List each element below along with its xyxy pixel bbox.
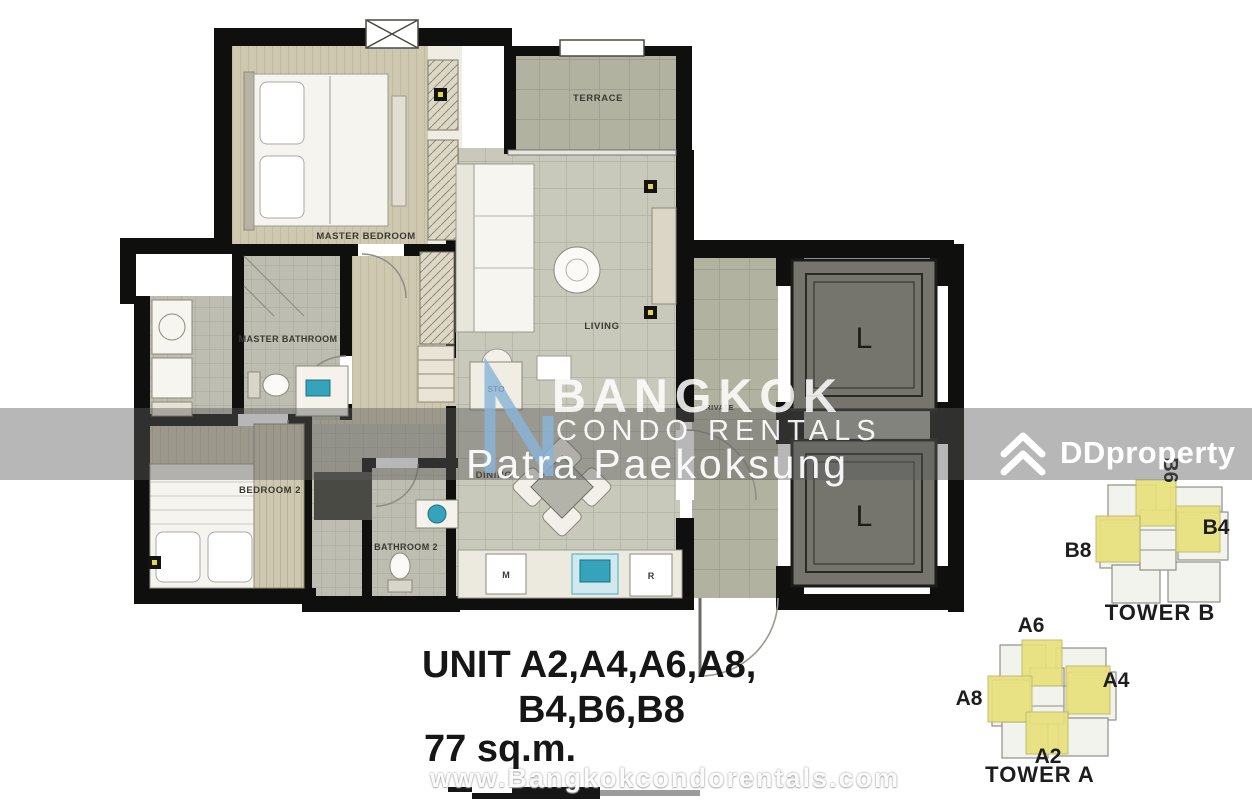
floorplan-image: L L MASTER BEDROOM MASTER BATHROOM BEDRO… (0, 0, 1252, 800)
sink-accent (306, 380, 330, 396)
sink-bowl (428, 505, 446, 523)
terrace-sliding-door (508, 150, 676, 155)
unit-title-line1: UNIT A2,A4,A6,A8, (422, 644, 756, 687)
unit-b8-label: B8 (1065, 539, 1092, 562)
label-bathroom-2: BATHROOM 2 (374, 542, 438, 552)
bedroom2-bed (150, 464, 262, 588)
watermark-agent-name: Patra Paekoksung (466, 441, 849, 488)
unit-b4-label: B4 (1203, 516, 1230, 539)
label-bedroom-2: BEDROOM 2 (239, 485, 301, 496)
tower-b-caption: TOWER B (1105, 600, 1215, 625)
lift-label: L (856, 500, 873, 533)
unit-a8-label: A8 (956, 687, 983, 710)
label-living: LIVING (584, 321, 619, 332)
label-appliance-m: M (502, 570, 510, 580)
sink-accent (580, 560, 610, 582)
label-master-bathroom: MASTER BATHROOM (239, 334, 338, 344)
unit-a4-label: A4 (1103, 669, 1130, 692)
unit-area: 77 sq.m. (424, 728, 576, 771)
unit-b6-highlight (1136, 480, 1176, 526)
coffee-table (554, 247, 600, 293)
wardrobe (428, 140, 458, 240)
label-master-bedroom: MASTER BEDROOM (316, 231, 415, 242)
tower-b-keyplan: B6 B8 B4 TOWER B (1065, 457, 1230, 625)
unit-b8-highlight (1096, 516, 1140, 562)
tower-a-keyplan: A6 A8 A4 A2 TOWER A (956, 614, 1130, 787)
label-terrace: TERRACE (573, 93, 623, 104)
lift-label: L (856, 322, 873, 355)
label-appliance-r: R (648, 571, 655, 581)
tv-console (652, 208, 676, 304)
ddproperty-label: DDproperty (1060, 435, 1236, 471)
unit-a8-highlight (988, 676, 1032, 722)
unit-title-line2: B4,B6,B8 (518, 689, 685, 732)
wardrobe (420, 252, 454, 344)
unit-a6-label: A6 (1018, 614, 1045, 637)
ddproperty-watermark: DDproperty (996, 426, 1236, 480)
tower-a-caption: TOWER A (985, 762, 1095, 787)
master-bed (244, 72, 406, 230)
terrace-floor (510, 56, 680, 152)
ddproperty-house-icon (996, 426, 1050, 480)
